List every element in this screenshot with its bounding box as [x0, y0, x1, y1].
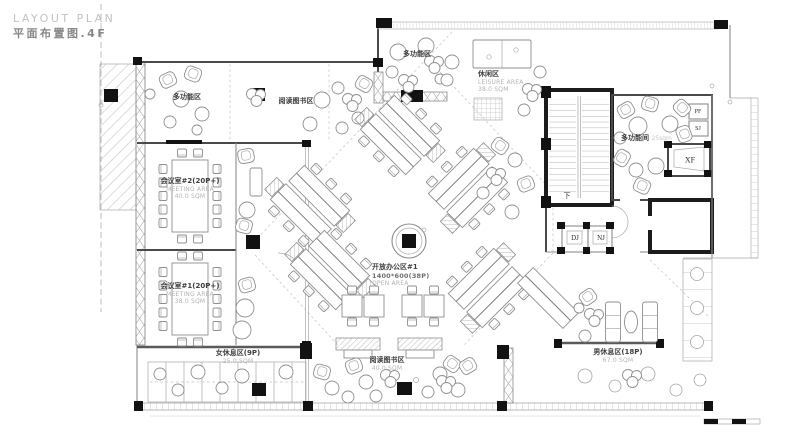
tv-panel [166, 140, 202, 144]
lift-shaft [650, 200, 712, 252]
multi-room-area: 25sqm [651, 135, 671, 142]
label-multifunction-top-center: 多功能区 [403, 50, 431, 59]
meeting2-name: 会议室#2(20P+) [161, 177, 220, 185]
label-multi-room: 多功能间 25sqm [621, 134, 672, 143]
open-office-en: OPEN AREA [372, 280, 429, 288]
label-pf-shaft: PF [695, 109, 702, 115]
multi-room-name: 多功能间 [621, 134, 649, 142]
meeting2-area: 40.0 SQM [161, 193, 220, 201]
label-meeting-room-2: 会议室#2(20P+) MEETING AREA 40.0 SQM [161, 177, 220, 201]
meeting1-area: 38.0 SQM [161, 298, 220, 306]
bottom-window-band [137, 403, 712, 410]
top-window-band [378, 22, 718, 29]
men-rest-name: 男休息区(18P) [593, 348, 642, 356]
label-stair-down: 下 [564, 191, 571, 201]
furniture-multi-tc [386, 38, 445, 93]
rug [474, 98, 502, 120]
men-rest-area: 67.0 SQM [593, 357, 642, 365]
hatched-void [100, 64, 136, 210]
meeting1-name: 会议室#1(20P+) [161, 282, 220, 290]
open-office-name: 开放办公区#1 [372, 263, 418, 271]
leisure-name: 休闲区 [478, 70, 499, 78]
furniture-women-rest [154, 365, 293, 396]
floor-plan-drawing [0, 0, 800, 446]
open-office-spec: 1400*600(38P) [372, 272, 429, 280]
meeting2-en: MEETING AREA [161, 186, 220, 194]
label-meeting-room-1: 会议室#1(20P+) MEETING AREA 38.0 SQM [161, 282, 220, 306]
label-sj-shaft: SJ [695, 126, 701, 132]
label-reading-top: 阅读图书区 [279, 97, 314, 106]
meeting1-en: MEETING AREA [161, 291, 220, 299]
women-rest-area: 25.0 SQM [216, 358, 260, 366]
women-rest-name: 女休息区(9P) [216, 349, 260, 357]
floor-plan-page: LAYOUT PLAN 平面布置图.4F 多功能区 阅读图书区 多功能区 休闲区… [0, 0, 800, 446]
right-window-band [751, 98, 758, 258]
furniture-multi-room [612, 95, 693, 196]
scale-bar [704, 419, 760, 424]
label-nj-shaft: NJ [597, 234, 605, 242]
label-xf-shaft: XF [685, 156, 695, 165]
curtain-wall-left [136, 62, 145, 345]
title-en: LAYOUT PLAN [13, 12, 115, 25]
reading-bottom-name: 阅读图书区 [370, 356, 405, 364]
label-leisure: 休闲区 LEISURE AREA 38.0 SQM [478, 70, 524, 94]
label-reading-bottom: 阅读图书区 40.0 SQM [370, 356, 405, 372]
label-open-office: 开放办公区#1 1400*600(38P) OPEN AREA [372, 263, 429, 287]
leisure-en: LEISURE AREA [478, 79, 524, 87]
furniture-men-rest [574, 287, 658, 342]
reading-bottom-area: 40.0 SQM [370, 365, 405, 373]
label-men-rest: 男休息区(18P) 67.0 SQM [593, 348, 642, 364]
title-zh: 平面布置图.4F [13, 25, 107, 41]
label-women-rest: 女休息区(9P) 25.0 SQM [216, 349, 260, 365]
leisure-area: 38.0 SQM [478, 86, 524, 94]
label-dj-shaft: DJ [571, 234, 579, 242]
label-multifunction-top-left: 多功能区 [173, 93, 201, 102]
